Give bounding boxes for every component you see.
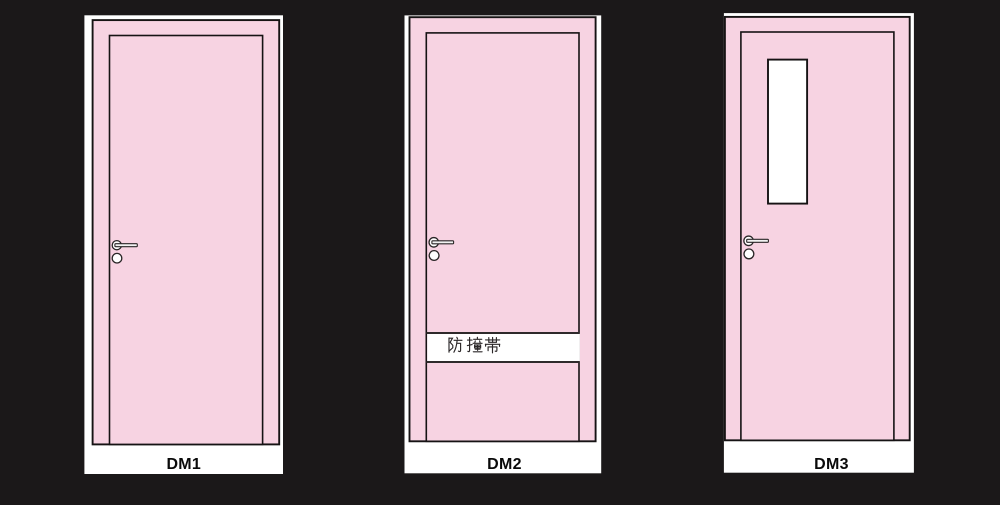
svg-text:DM2: DM2 [487, 456, 522, 473]
svg-text:DM3: DM3 [814, 456, 849, 473]
svg-text:DM1: DM1 [166, 456, 201, 473]
